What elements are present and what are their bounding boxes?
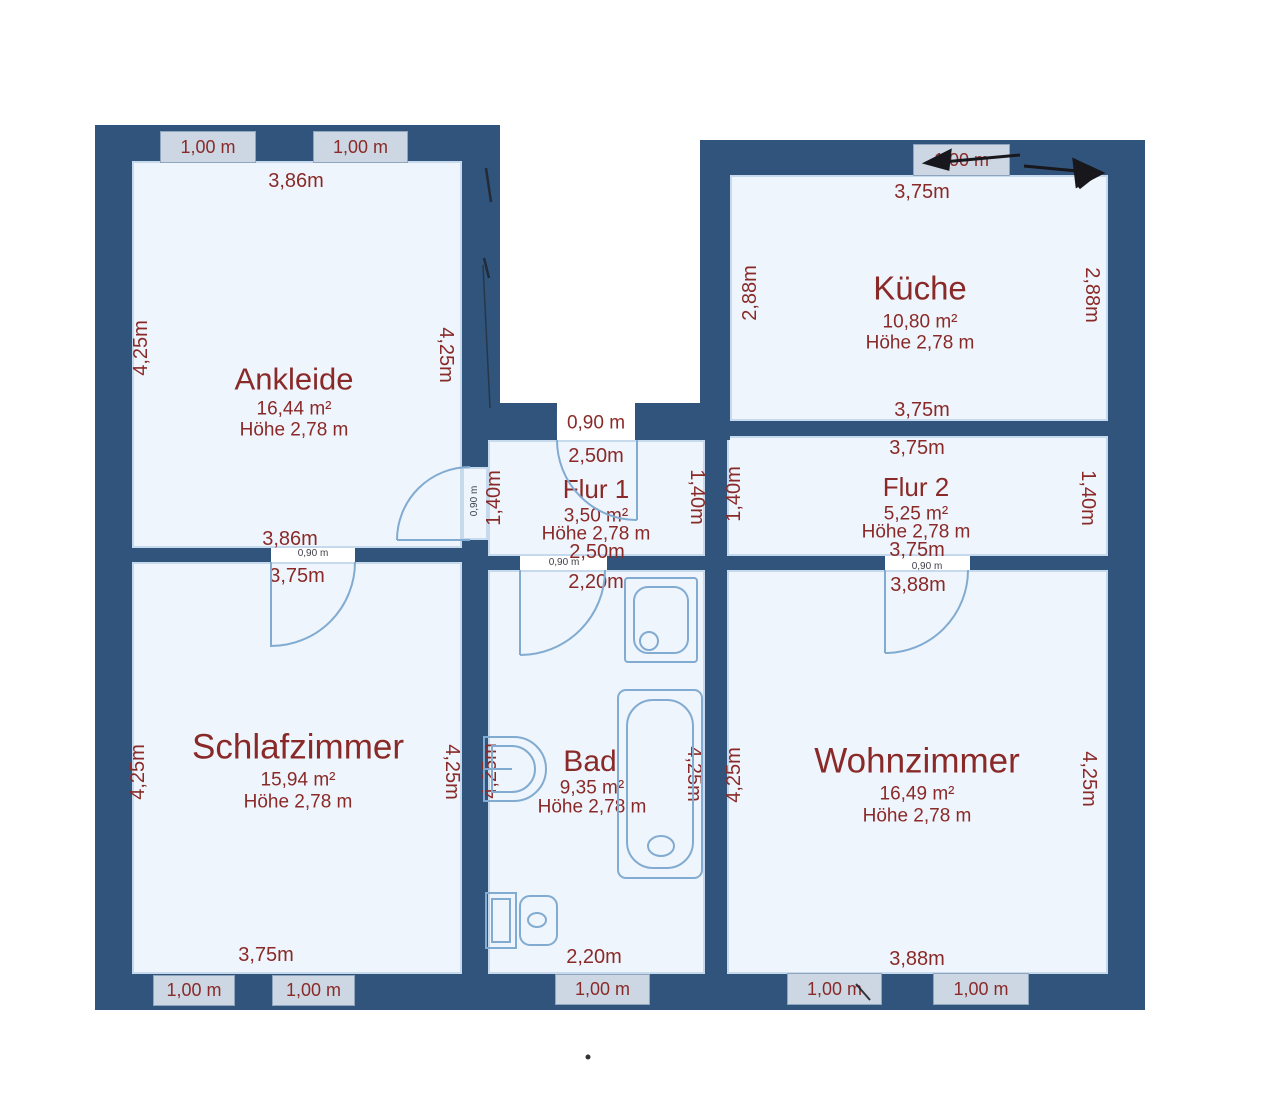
schlafzimmer-dim-bottom: 3,75m	[238, 945, 294, 965]
window-label: 1,00 m	[180, 137, 235, 158]
window-bad-bottom: 1,00 m	[555, 974, 650, 1005]
kueche-dim-right: 2,88m	[1082, 267, 1102, 323]
ankleide-dim-bottom: 3,86m	[262, 529, 318, 549]
kueche-dim-left: 2,88m	[740, 265, 760, 321]
window-label: 1,00 m	[286, 980, 341, 1001]
schlafzimmer-dim-left: 4,25m	[128, 744, 148, 800]
window-label: 1,00 m	[953, 979, 1008, 1000]
schlafzimmer-dim-top: 3,75m	[269, 566, 325, 586]
wohnzimmer-dim-left: 4,25m	[724, 747, 744, 803]
kueche-dim-bottom: 3,75m	[894, 400, 950, 420]
bad-dim-bottom: 2,20m	[566, 947, 622, 967]
window-kueche-top: 1,00 m	[913, 144, 1010, 176]
wall-outer-left	[95, 125, 132, 1010]
wall-ankleide-flur1-upper	[462, 415, 488, 467]
window-label: 1,00 m	[807, 979, 862, 1000]
bad-height: Höhe 2,78 m	[538, 798, 647, 817]
bad-dim-right: 4,25m	[684, 746, 704, 802]
window-label: 1,00 m	[575, 979, 630, 1000]
wall-flur2-wohnzimmer-right	[970, 556, 1108, 570]
wohnzimmer-door-width-label: 0,90 m	[912, 562, 943, 572]
wall-kueche-left	[700, 140, 730, 440]
flur1-dim-left: 1,40m	[484, 470, 504, 526]
wall-flur2-wohnzimmer-left	[727, 556, 885, 570]
ankleide-room-name: Ankleide	[235, 364, 354, 395]
kueche-area: 10,80 m²	[883, 313, 958, 332]
flur2-room-name: Flur 2	[883, 474, 949, 500]
flur1-left-door-width-label: 0,90 m	[470, 486, 480, 517]
room-schlafzimmer-floor	[132, 562, 462, 974]
flur2-dim-bottom: 3,75m	[889, 540, 945, 560]
wohnzimmer-room-name: Wohnzimmer	[814, 744, 1020, 779]
flur2-dim-left: 1,40m	[724, 466, 744, 522]
window-wohnzimmer-bottom-2: 1,00 m	[933, 973, 1029, 1005]
flur1-dim-right: 1,40m	[687, 469, 707, 525]
floor-plan: 1,00 m 1,00 m 1,00 m 1,00 m 1,00 m 1,00 …	[0, 0, 1279, 1106]
wohnzimmer-dim-bottom: 3,88m	[889, 949, 945, 969]
window-schlafzimmer-bottom-2: 1,00 m	[272, 975, 355, 1006]
flur1-door-width-label: 0,90 m	[557, 411, 635, 436]
window-label: 1,00 m	[333, 137, 388, 158]
flur1-dim-top: 2,50m	[568, 446, 624, 466]
kueche-room-name: Küche	[873, 272, 967, 305]
wohnzimmer-dim-top: 3,88m	[890, 575, 946, 595]
wall-kueche-flur2	[727, 421, 1108, 436]
window-label: 1,00 m	[934, 150, 989, 171]
bad-door-width-label: 0,90 m	[549, 558, 580, 568]
wall-ankleide-schlafzimmer-left	[95, 548, 271, 562]
wall-outer-top-left	[95, 125, 500, 161]
bad-room-name: Bad	[563, 747, 616, 777]
schlafzimmer-door-width-label: 0,90 m	[298, 549, 329, 559]
window-label: 1,00 m	[166, 980, 221, 1001]
wall-outer-right	[1108, 140, 1145, 1010]
ankleide-area: 16,44 m²	[257, 400, 332, 419]
wohnzimmer-height: Höhe 2,78 m	[863, 807, 972, 826]
wohnzimmer-dim-right: 4,25m	[1079, 751, 1099, 807]
kueche-dim-top: 3,75m	[894, 182, 950, 202]
bad-dim-top: 2,20m	[568, 572, 624, 592]
ankleide-dim-top: 3,86m	[268, 171, 324, 191]
flur1-room-name: Flur 1	[563, 476, 629, 502]
room-ankleide-floor	[132, 161, 462, 548]
schlafzimmer-room-name: Schlafzimmer	[192, 730, 404, 765]
wall-ankleide-right	[462, 125, 500, 415]
schlafzimmer-height: Höhe 2,78 m	[244, 793, 353, 812]
ankleide-dim-right: 4,25m	[436, 327, 456, 383]
window-ankleide-top-2: 1,00 m	[313, 131, 408, 163]
wall-flur1-bad-left	[488, 556, 520, 570]
ankleide-height: Höhe 2,78 m	[240, 421, 349, 440]
flur2-dim-right: 1,40m	[1078, 470, 1098, 526]
kueche-height: Höhe 2,78 m	[866, 334, 975, 353]
bad-dim-left: 4,25m	[480, 743, 500, 799]
window-wohnzimmer-bottom-1: 1,00 m	[787, 973, 882, 1005]
ankleide-dim-left: 4,25m	[131, 320, 151, 376]
schlafzimmer-area: 15,94 m²	[261, 771, 336, 790]
wohnzimmer-area: 16,49 m²	[880, 785, 955, 804]
flur2-dim-top: 3,75m	[889, 438, 945, 458]
window-schlafzimmer-bottom-1: 1,00 m	[153, 975, 235, 1006]
window-ankleide-top-1: 1,00 m	[160, 131, 256, 163]
schlafzimmer-dim-right: 4,25m	[442, 744, 462, 800]
bad-area: 9,35 m²	[560, 779, 624, 798]
